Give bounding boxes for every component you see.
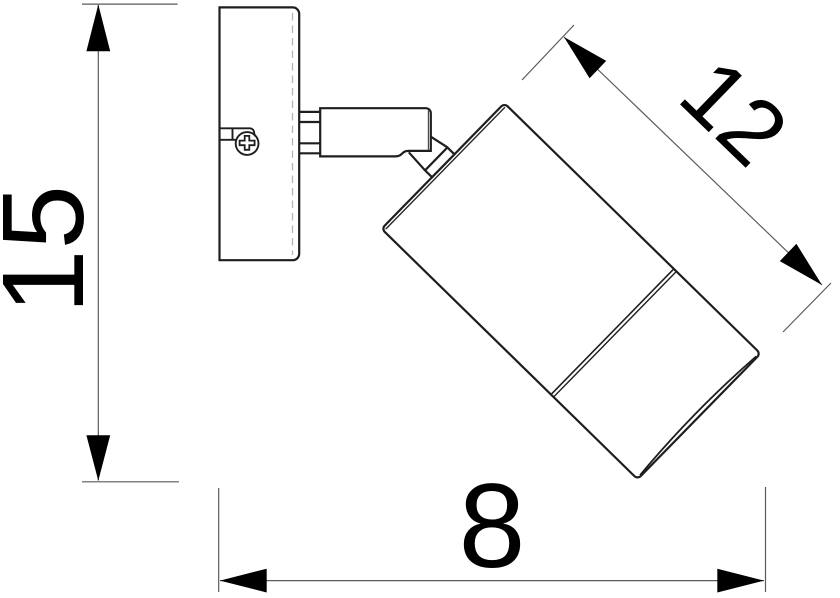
svg-text:15: 15 — [0, 185, 108, 314]
svg-text:8: 8 — [459, 459, 526, 593]
